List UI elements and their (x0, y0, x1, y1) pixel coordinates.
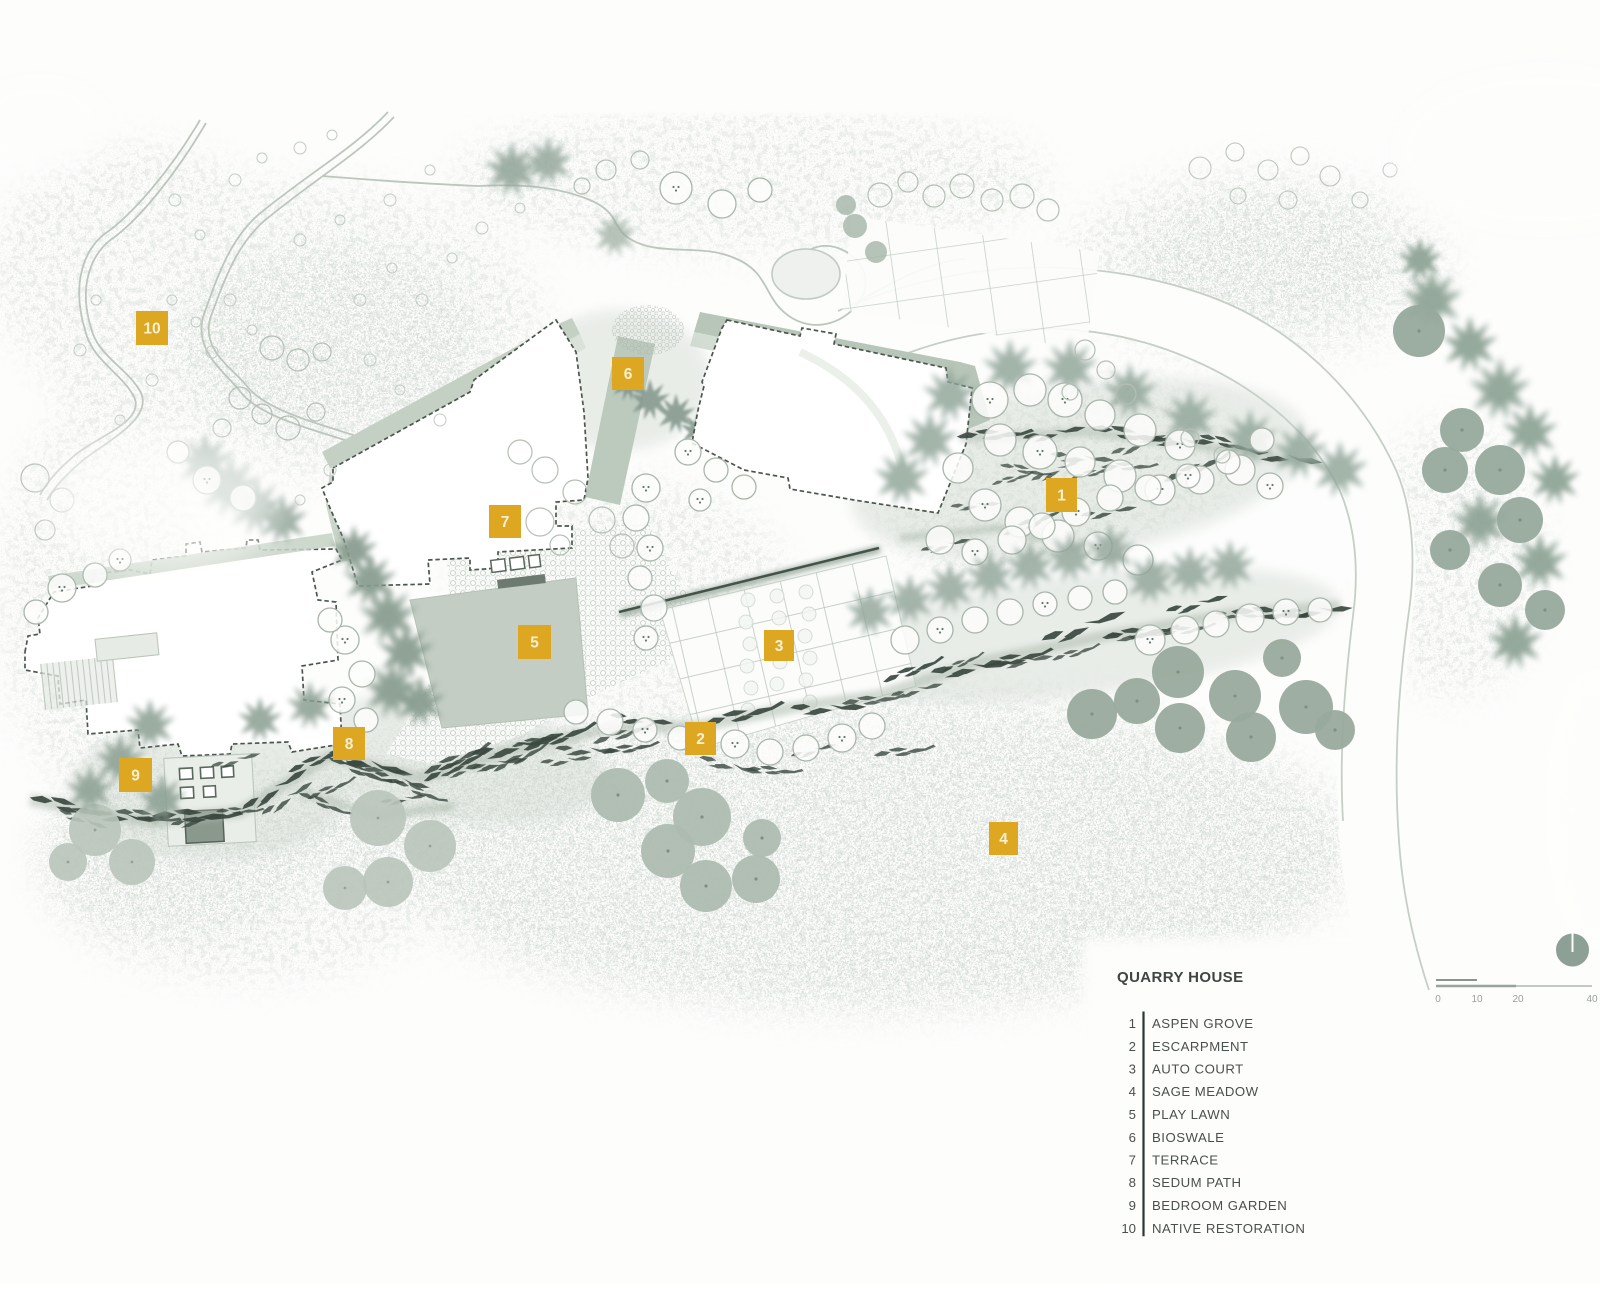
svg-text:7: 7 (501, 514, 510, 531)
svg-text:10: 10 (1471, 994, 1483, 1005)
svg-text:10: 10 (1121, 1221, 1136, 1236)
svg-text:2: 2 (696, 731, 705, 748)
svg-text:PLAY LAWN: PLAY LAWN (1152, 1107, 1230, 1122)
svg-text:3: 3 (775, 638, 784, 655)
svg-text:7: 7 (1129, 1153, 1136, 1168)
svg-text:ESCARPMENT: ESCARPMENT (1152, 1039, 1249, 1054)
svg-text:NATIVE RESTORATION: NATIVE RESTORATION (1152, 1221, 1305, 1236)
svg-text:BEDROOM GARDEN: BEDROOM GARDEN (1152, 1198, 1287, 1213)
svg-text:1: 1 (1129, 1016, 1136, 1031)
svg-text:BIOSWALE: BIOSWALE (1152, 1130, 1224, 1145)
svg-text:1: 1 (1057, 488, 1066, 505)
svg-text:40: 40 (1586, 994, 1598, 1005)
svg-text:8: 8 (1129, 1175, 1136, 1190)
svg-text:3: 3 (1129, 1062, 1136, 1077)
svg-text:SEDUM PATH: SEDUM PATH (1152, 1175, 1242, 1190)
svg-text:2: 2 (1129, 1039, 1136, 1054)
svg-text:TERRACE: TERRACE (1152, 1153, 1219, 1168)
svg-text:4: 4 (1129, 1084, 1136, 1099)
svg-text:9: 9 (1129, 1198, 1136, 1213)
svg-text:5: 5 (530, 635, 539, 652)
svg-text:8: 8 (345, 736, 354, 753)
svg-text:6: 6 (1129, 1130, 1136, 1145)
svg-text:9: 9 (131, 768, 140, 785)
svg-text:ASPEN GROVE: ASPEN GROVE (1152, 1016, 1254, 1031)
svg-text:6: 6 (624, 366, 633, 383)
svg-text:20: 20 (1512, 994, 1524, 1005)
svg-text:AUTO COURT: AUTO COURT (1152, 1062, 1244, 1077)
svg-text:4: 4 (999, 831, 1008, 848)
svg-text:0: 0 (1435, 994, 1441, 1005)
svg-text:QUARRY HOUSE: QUARRY HOUSE (1117, 969, 1244, 986)
svg-text:5: 5 (1129, 1107, 1136, 1122)
svg-text:10: 10 (143, 321, 160, 338)
svg-text:SAGE MEADOW: SAGE MEADOW (1152, 1084, 1259, 1099)
